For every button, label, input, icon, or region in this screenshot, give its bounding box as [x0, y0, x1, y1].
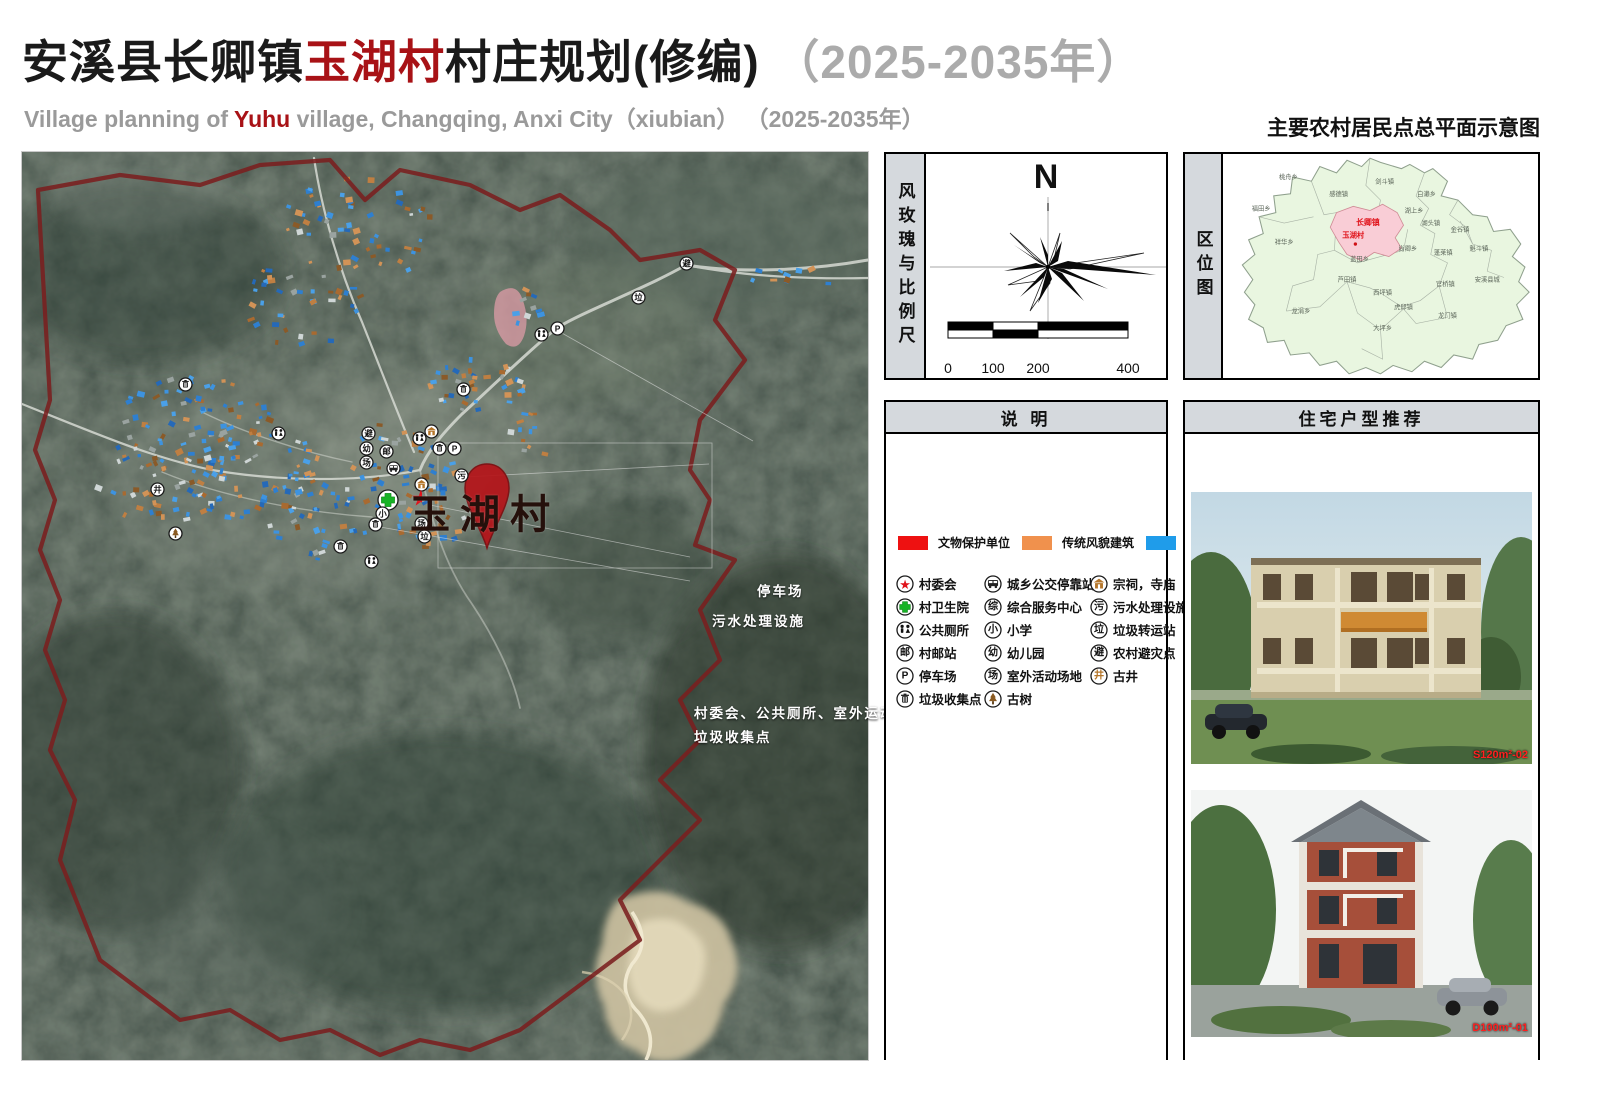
- legend-item: 邮村邮站: [896, 641, 980, 664]
- legend-item: 井古井: [1090, 664, 1182, 687]
- map-temple-icon: [424, 424, 439, 439]
- legend-title: 说 明: [886, 402, 1166, 434]
- legend-item: 城乡公交停靠站: [984, 572, 1086, 595]
- town-label: 尚卿乡: [1398, 243, 1417, 252]
- town-label: 龙涓乡: [1292, 306, 1311, 315]
- legend-item: 垃圾收集点: [896, 687, 980, 710]
- town-label: 湖上乡: [1405, 206, 1424, 215]
- char-综-icon: 综: [984, 598, 1002, 616]
- swatch-2: [1146, 536, 1176, 550]
- svg-text:幼: 幼: [362, 443, 370, 453]
- svg-text:避: 避: [364, 428, 373, 438]
- sheet-title: 主要农村居民点总平面示意图: [1267, 112, 1540, 142]
- scale-tick: 100: [981, 360, 1004, 376]
- legend-item: 小小学: [984, 618, 1086, 641]
- map-trash-icon: [456, 382, 471, 397]
- town-label: 感德镇: [1329, 189, 1348, 198]
- location-map: 桃舟乡感德镇剑斗镇白濑乡福田乡湖上乡湖头镇金谷镇祥华乡魁斗镇蓬莱镇尚卿乡蓝田乡芦…: [1223, 154, 1538, 378]
- house-type-label-2: D100m²-01: [1472, 1022, 1528, 1034]
- svg-text:井: 井: [1094, 668, 1104, 681]
- location-panel: 区位图 桃舟乡感德镇剑斗镇白濑乡福田乡湖上乡湖头镇金谷镇祥华乡魁斗镇蓬莱镇尚卿乡…: [1183, 152, 1540, 380]
- map-wc-icon: [534, 327, 549, 342]
- map-char-垃-icon: 垃: [631, 290, 646, 305]
- map-char-避-icon: 避: [361, 426, 376, 441]
- town-label: 大坪乡: [1373, 323, 1392, 332]
- town-label: 虎邱镇: [1394, 302, 1413, 311]
- legend-item: 村卫生院: [896, 595, 980, 618]
- svg-text:邮: 邮: [900, 645, 910, 658]
- scale-tick: 200: [1026, 360, 1049, 376]
- svg-text:小: 小: [987, 622, 999, 635]
- char-小-icon: 小: [984, 621, 1002, 639]
- trash-icon: [896, 690, 914, 708]
- scale-tick-labels: 0100200400: [926, 360, 1166, 376]
- town-label: 龙门镇: [1438, 310, 1457, 319]
- town-label: 蓝田乡: [1350, 254, 1369, 263]
- page-subtitle: Village planning of Yuhu village, Changq…: [24, 100, 925, 134]
- temple-icon: [1090, 575, 1108, 593]
- map-char-场-icon: 场: [359, 455, 374, 470]
- svg-text:★: ★: [899, 577, 911, 592]
- svg-text:邮: 邮: [382, 446, 391, 456]
- svg-text:P: P: [902, 670, 909, 681]
- svg-text:垃: 垃: [1094, 622, 1104, 635]
- legend-item: 污污水处理设施: [1090, 595, 1182, 618]
- satellite-map[interactable]: P 垃 避 避 幼 邮 场 P 污: [22, 152, 868, 1060]
- svg-text:P: P: [554, 323, 560, 333]
- location-panel-title: 区位图: [1185, 154, 1223, 378]
- legend-item: 公共厕所: [896, 618, 980, 641]
- svg-text:场: 场: [988, 668, 998, 681]
- page-title: 安溪县长卿镇玉湖村村庄规划(修编) （2025-2035年）: [22, 26, 1143, 92]
- svg-text:场: 场: [362, 457, 371, 467]
- map-char-邮-icon: 邮: [379, 444, 394, 459]
- svg-text:P: P: [451, 443, 457, 453]
- svg-text:避: 避: [1094, 645, 1105, 658]
- cross-icon: [896, 598, 914, 616]
- char-井-icon: 井: [1090, 667, 1108, 685]
- legend-item: 幼幼儿园: [984, 641, 1086, 664]
- svg-text:垃: 垃: [634, 292, 643, 302]
- map-bus-icon: [386, 461, 401, 476]
- legend-item: 古树: [984, 687, 1086, 710]
- swatch-label-1: 传统风貌建筑: [1062, 534, 1134, 551]
- housing-panel: 住宅户型推荐: [1183, 400, 1540, 1060]
- svg-text:井: 井: [153, 484, 162, 494]
- title-village-name: 玉湖村: [304, 36, 445, 88]
- svg-text:长卿镇: 长卿镇: [1356, 217, 1380, 227]
- map-char-避-icon: 避: [679, 256, 694, 271]
- legend-items: ★村委会 村卫生院 公共厕所 邮村邮站 P停车场 垃圾收集点 城乡公交停靠站 综…: [896, 572, 1182, 710]
- windrose-panel: 风玫瑰与比例尺 N: [884, 152, 1168, 380]
- legend-item: P停车场: [896, 664, 980, 687]
- wc-icon: [896, 621, 914, 639]
- swatch-label-0: 文物保护单位: [938, 534, 1010, 551]
- town-label: 蓬莱镇: [1434, 247, 1453, 256]
- town-label: 安溪县城: [1475, 275, 1501, 284]
- legend-item: 综综合服务中心: [984, 595, 1086, 618]
- town-label: 桃舟乡: [1279, 172, 1298, 181]
- town-label: 白濑乡: [1417, 189, 1436, 198]
- map-char-P-icon: P: [550, 321, 565, 336]
- map-annotation: 污水处理设施: [712, 610, 805, 630]
- legend-panel: 说 明 文物保护单位传统风貌建筑现代建筑 ★村委会 村卫生院 公共厕所 邮村邮站…: [884, 400, 1168, 1060]
- char-邮-icon: 邮: [896, 644, 914, 662]
- map-char-污-icon: 污: [454, 468, 469, 483]
- bus-icon: [984, 575, 1002, 593]
- town-label: 祥华乡: [1275, 237, 1294, 246]
- town-label: 芦田镇: [1338, 275, 1357, 284]
- map-wc-icon: [271, 426, 286, 441]
- map-trash-icon: [333, 539, 348, 554]
- map-trash-icon: [178, 377, 193, 392]
- map-char-井-icon: 井: [150, 482, 165, 497]
- star-icon: ★: [896, 575, 914, 593]
- legend-item: 宗祠，寺庙: [1090, 572, 1182, 595]
- char-P-icon: P: [896, 667, 914, 685]
- svg-text:玉湖村: 玉湖村: [1342, 231, 1365, 240]
- svg-text:综: 综: [988, 599, 999, 612]
- map-annotation: 村委会、公共厕所、室外运动场: [694, 702, 911, 722]
- scale-bar: [926, 320, 1170, 342]
- scale-tick: 0: [944, 360, 952, 376]
- house-render-2: D100m²-01: [1191, 790, 1532, 1037]
- svg-text:幼: 幼: [988, 645, 998, 658]
- char-垃-icon: 垃: [1090, 621, 1108, 639]
- svg-text:污: 污: [1094, 599, 1104, 612]
- swatch-0: [898, 536, 928, 550]
- map-char-幼-icon: 幼: [359, 441, 374, 456]
- map-char-P-icon: P: [447, 441, 462, 456]
- town-label: 官桥镇: [1436, 279, 1455, 288]
- map-tree-icon: [168, 526, 183, 541]
- windrose-panel-title: 风玫瑰与比例尺: [886, 154, 926, 378]
- town-label: 西坪镇: [1373, 287, 1392, 296]
- map-trash-icon: [368, 517, 383, 532]
- town-label: 剑斗镇: [1375, 176, 1394, 185]
- map-trash-icon: [432, 441, 447, 456]
- char-污-icon: 污: [1090, 598, 1108, 616]
- tree-icon: [984, 690, 1002, 708]
- map-wc-icon: [364, 554, 379, 569]
- house-render-1: S120m²-02: [1191, 492, 1532, 764]
- house-type-label-1: S120m²-02: [1473, 749, 1528, 761]
- legend-item: ★村委会: [896, 572, 980, 595]
- town-label: 金谷镇: [1451, 224, 1470, 233]
- svg-text:污: 污: [457, 470, 466, 480]
- town-label: 湖头镇: [1421, 218, 1440, 227]
- swatch-1: [1022, 536, 1052, 550]
- legend-item: 垃垃圾转运站: [1090, 618, 1182, 641]
- svg-text:避: 避: [682, 258, 691, 268]
- housing-title: 住宅户型推荐: [1185, 402, 1538, 434]
- village-name-label: 玉湖村: [410, 482, 560, 540]
- town-label: 福田乡: [1252, 204, 1271, 213]
- scale-tick: 400: [1116, 360, 1139, 376]
- map-annotation: 停车场: [757, 580, 804, 600]
- char-场-icon: 场: [984, 667, 1002, 685]
- char-避-icon: 避: [1090, 644, 1108, 662]
- map-annotation: 垃圾收集点: [694, 726, 772, 746]
- satellite-map-canvas: P 垃 避 避 幼 邮 场 P 污: [22, 152, 868, 1060]
- town-label: 魁斗镇: [1469, 243, 1488, 252]
- title-years: （2025-2035年）: [773, 36, 1143, 88]
- legend-item: 避农村避灾点: [1090, 641, 1182, 664]
- char-幼-icon: 幼: [984, 644, 1002, 662]
- legend-item: 场室外活动场地: [984, 664, 1086, 687]
